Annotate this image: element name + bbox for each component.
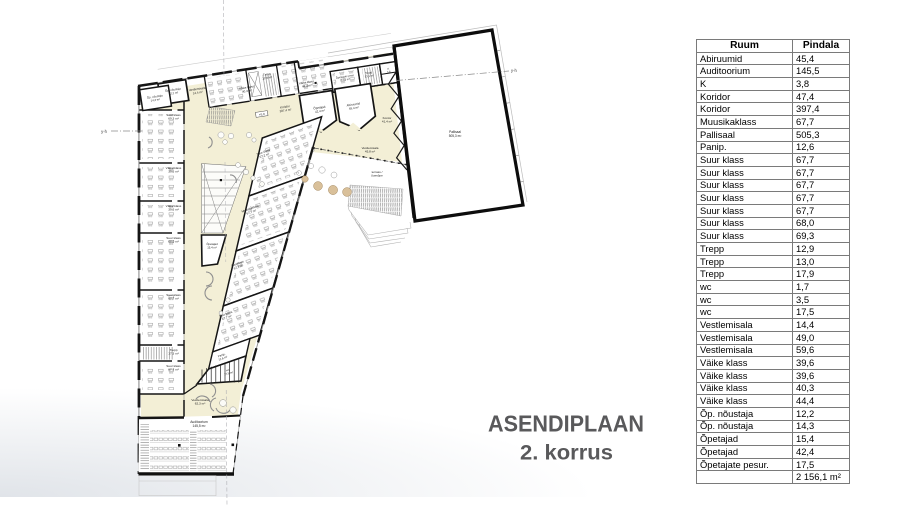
svg-text:Õpetajad15,4 m²: Õpetajad15,4 m²: [206, 241, 218, 249]
svg-text:2. korrus: 2. korrus: [520, 442, 613, 465]
svg-text:terrass /õuesõpe: terrass /õuesõpe: [371, 170, 383, 178]
svg-text:у-h: у-h: [511, 68, 517, 73]
svg-text:Auditoorium145,5 m²: Auditoorium145,5 m²: [190, 420, 208, 428]
svg-text:Kontor41,4 m²: Kontor41,4 m²: [382, 116, 392, 124]
svg-text:Pallisaal505,3 m²: Pallisaal505,3 m²: [449, 130, 462, 138]
svg-text:ASENDIPLAAN: ASENDIPLAAN: [488, 411, 644, 437]
svg-text:у-h: у-h: [101, 129, 107, 134]
